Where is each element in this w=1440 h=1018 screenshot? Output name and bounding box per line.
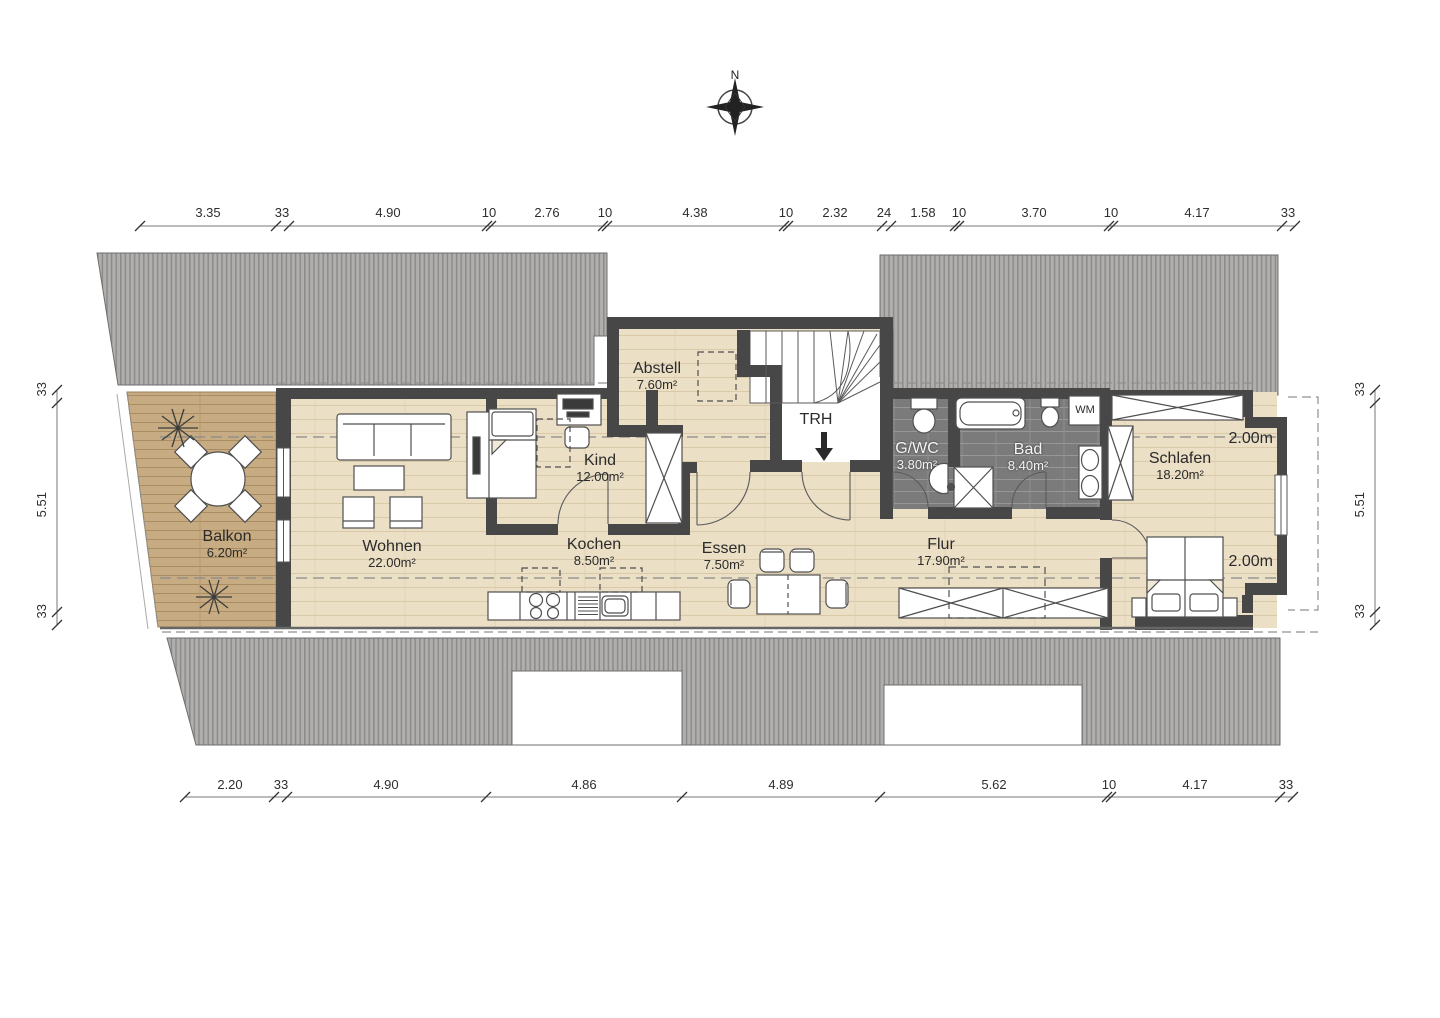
bedroom-wardrobe-top: [1112, 395, 1243, 420]
kid-desk: [557, 394, 601, 425]
room-name: Kochen: [567, 536, 621, 554]
gwc-toilet: [911, 398, 937, 433]
room-name: G/WC: [895, 440, 939, 458]
dim-top-11: 10: [952, 205, 966, 220]
balcony-door-window-upper: [277, 448, 290, 497]
room-name: TRH: [800, 411, 833, 429]
dim-top-14: 4.17: [1184, 205, 1209, 220]
room-label-abstell: Abstell 7.60m²: [633, 360, 681, 393]
nightstand-left: [1132, 598, 1146, 617]
dim-top-6: 4.38: [682, 205, 707, 220]
room-label-bad: Bad 8.40m²: [1008, 441, 1048, 474]
dim-right-2: 33: [1352, 604, 1367, 618]
nightstand-right: [1223, 598, 1237, 617]
room-label-gwc: G/WC 3.80m²: [895, 440, 939, 473]
dim-right-0: 33: [1352, 382, 1367, 396]
dim-top-4: 2.76: [534, 205, 559, 220]
room-name: Kind: [576, 452, 624, 470]
room-area: 3.80m²: [895, 458, 939, 473]
dim-bottom-8: 33: [1279, 777, 1293, 792]
dim-top-0: 3.35: [195, 205, 220, 220]
dim-left-2: 33: [34, 604, 49, 618]
dim-bottom-5: 5.62: [981, 777, 1006, 792]
dim-bottom-7: 4.17: [1182, 777, 1207, 792]
room-area: 17.90m²: [917, 554, 965, 569]
room-label-kochen: Kochen 8.50m²: [567, 536, 621, 569]
room-name: Essen: [702, 540, 746, 558]
tv-board: [467, 412, 492, 498]
kid-bed: [489, 409, 536, 498]
cooktop-burner: [547, 594, 560, 607]
dim-top-15: 33: [1281, 205, 1295, 220]
bathtub: [956, 398, 1025, 429]
room-label-wohnen: Wohnen 22.00m²: [362, 538, 421, 571]
double-washbasin: [1079, 446, 1102, 499]
room-name: Schlafen: [1149, 450, 1211, 468]
flur-wardrobe: [899, 588, 1108, 618]
roof-hatch-bottom: [167, 638, 1280, 745]
sofa: [337, 414, 451, 460]
room-label-flur: Flur 17.90m²: [917, 536, 965, 569]
headroom-label-bottom: 2.00m: [1229, 553, 1273, 571]
dining-table: [757, 575, 820, 614]
dim-bottom-6: 10: [1102, 777, 1116, 792]
dim-top-2: 4.90: [375, 205, 400, 220]
room-area: 18.20m²: [1149, 468, 1211, 483]
compass-rose: [706, 78, 764, 136]
floor-plan-drawing: [0, 0, 1440, 1018]
room-area: 7.60m²: [633, 378, 681, 393]
dim-top-10: 1.58: [910, 205, 935, 220]
coffee-table: [354, 466, 404, 490]
kitchen-counter: [488, 592, 680, 620]
room-label-kind: Kind 12.00m²: [576, 452, 624, 485]
balcony-door-window-lower: [277, 520, 290, 562]
room-name: Balkon: [203, 528, 252, 546]
dim-bottom-3: 4.86: [571, 777, 596, 792]
double-bed: [1147, 537, 1223, 617]
desk-chair: [565, 427, 589, 448]
dim-top-5: 10: [598, 205, 612, 220]
room-area: 6.20m²: [203, 546, 252, 561]
armchair-left: [343, 497, 374, 528]
roof-hatch-top-right: [880, 255, 1278, 395]
dormer-notch-right: [884, 685, 1082, 745]
bedroom-window: [1275, 475, 1287, 535]
roof-hatch-top-left: [97, 253, 607, 385]
dim-top-12: 3.70: [1021, 205, 1046, 220]
dim-top-7: 10: [779, 205, 793, 220]
cooktop-burner: [548, 608, 559, 619]
pillow: [1152, 594, 1180, 611]
room-label-schlafen: Schlafen 18.20m²: [1149, 450, 1211, 483]
dim-bottom-0: 2.20: [217, 777, 242, 792]
dim-top-13: 10: [1104, 205, 1118, 220]
room-area: 8.40m²: [1008, 459, 1048, 474]
room-name: Wohnen: [362, 538, 421, 556]
washing-machine-label: WM: [1075, 404, 1095, 416]
dim-left-1: 5.51: [34, 492, 49, 517]
floor-plan: N Balkon 6.20m² Wohnen 22.00m² Kind 12.0…: [0, 0, 1440, 1018]
kitchen-sink-basin: [605, 599, 625, 613]
pillow: [1190, 594, 1218, 611]
bedroom-wardrobe-left: [1108, 426, 1133, 500]
room-area: 8.50m²: [567, 554, 621, 569]
room-label-balkon: Balkon 6.20m²: [203, 528, 252, 561]
room-name: Flur: [917, 536, 965, 554]
dim-left-0: 33: [34, 382, 49, 396]
dormer-notch-left: [512, 671, 682, 745]
room-area: 22.00m²: [362, 556, 421, 571]
room-name: Abstell: [633, 360, 681, 378]
armchair-right: [390, 497, 422, 528]
dim-top-8: 2.32: [822, 205, 847, 220]
compass-north-label: N: [731, 68, 740, 82]
shower: [948, 467, 994, 508]
cooktop-burner: [531, 608, 542, 619]
room-name: Bad: [1008, 441, 1048, 459]
dim-top-3: 10: [482, 205, 496, 220]
kind-wardrobe: [646, 433, 682, 523]
room-area: 7.50m²: [702, 558, 746, 573]
headroom-label-top: 2.00m: [1229, 430, 1273, 448]
dim-bottom-1: 33: [274, 777, 288, 792]
bad-toilet: [1041, 398, 1059, 427]
dim-top-9: 24: [877, 205, 891, 220]
dim-right-1: 5.51: [1352, 492, 1367, 517]
room-label-essen: Essen 7.50m²: [702, 540, 746, 573]
room-label-trh: TRH: [800, 411, 833, 429]
dim-bottom-2: 4.90: [373, 777, 398, 792]
room-area: 12.00m²: [576, 470, 624, 485]
cooktop-burner: [530, 594, 543, 607]
dim-bottom-4: 4.89: [768, 777, 793, 792]
dim-top-1: 33: [275, 205, 289, 220]
